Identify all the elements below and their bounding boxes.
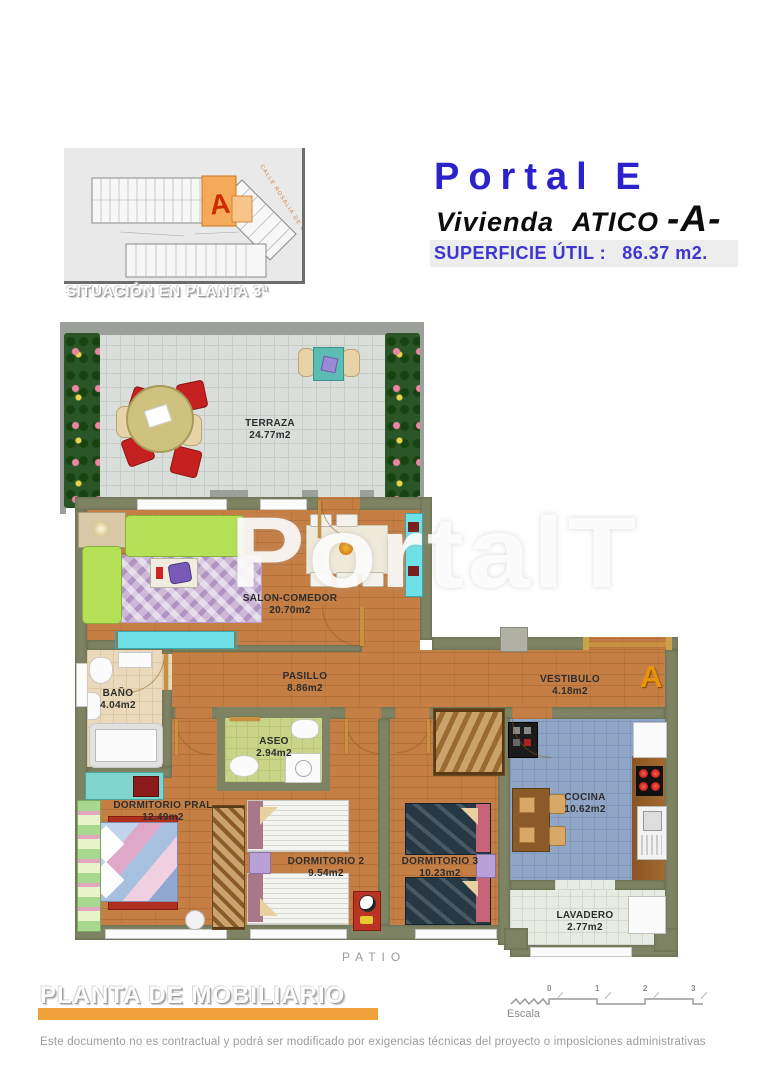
window bbox=[415, 929, 497, 939]
door-opening bbox=[175, 707, 212, 719]
superficie-label: SUPERFICIE ÚTIL : bbox=[434, 243, 606, 263]
door-leaf bbox=[175, 719, 178, 755]
scale-tick: 3 bbox=[691, 984, 695, 993]
table-item bbox=[167, 561, 192, 585]
door-jamb bbox=[666, 637, 672, 650]
burner bbox=[639, 769, 648, 778]
door-leaf bbox=[230, 717, 260, 721]
drainer bbox=[641, 835, 662, 855]
entrance-door-leaf bbox=[588, 642, 666, 647]
wall-pillar bbox=[500, 627, 528, 652]
situation-caption: SITUACIÓN EN PLANTA 3ª bbox=[66, 283, 268, 300]
door-leaf bbox=[427, 719, 430, 753]
bed-fold bbox=[461, 808, 478, 825]
flower-planter bbox=[385, 333, 420, 508]
superficie-value: 86.37 m2. bbox=[622, 243, 708, 263]
table-item bbox=[156, 567, 163, 579]
toy-box bbox=[353, 891, 381, 931]
wall bbox=[665, 650, 678, 957]
room-label-dorm3: DORMITORIO 3 10.23m2 bbox=[390, 856, 490, 880]
side-table bbox=[78, 512, 126, 548]
stool bbox=[185, 910, 205, 930]
wall bbox=[64, 322, 420, 335]
single-bed bbox=[247, 800, 349, 852]
double-bed bbox=[98, 822, 178, 902]
door-leaf bbox=[164, 654, 168, 690]
room-label-bano: BAÑO 4.04m2 bbox=[78, 688, 158, 712]
single-bed bbox=[405, 877, 491, 925]
situation-unit-letter: A bbox=[208, 188, 231, 221]
room-label-vestibulo: VESTIBULO 4.18m2 bbox=[520, 674, 620, 698]
sofa bbox=[125, 515, 245, 557]
door-opening bbox=[555, 880, 615, 890]
door-opening bbox=[512, 707, 552, 719]
window bbox=[530, 947, 632, 957]
shower-drain bbox=[295, 760, 312, 777]
door-opening bbox=[395, 707, 430, 719]
table-setting bbox=[519, 827, 535, 843]
lamp bbox=[93, 521, 109, 537]
fridge bbox=[633, 722, 667, 758]
bed-headboard bbox=[476, 804, 490, 852]
bed-headboard bbox=[476, 878, 490, 922]
burner bbox=[651, 769, 660, 778]
room-label-dorm-pral: DORMITORIO PRAL 12.49m2 bbox=[108, 800, 218, 824]
terrace-side-table bbox=[313, 347, 344, 381]
toy bbox=[360, 916, 373, 924]
bed-fold bbox=[260, 807, 278, 825]
room-label-lavadero: LAVADERO 2.77m2 bbox=[525, 910, 645, 934]
cooktop bbox=[636, 766, 663, 796]
flower-planter bbox=[64, 333, 100, 508]
door-leaf bbox=[345, 719, 348, 754]
burner bbox=[639, 782, 648, 791]
dwelling-type: ATICO bbox=[572, 207, 659, 237]
floorplan-page: A CALLE ROSALIA DE CASTRO SITUACIÓN EN P… bbox=[0, 0, 763, 1080]
coffee-table bbox=[150, 558, 198, 588]
table-item bbox=[321, 356, 339, 374]
window bbox=[105, 929, 227, 939]
kitchen-sink bbox=[637, 806, 667, 860]
scale-tick: 0 bbox=[547, 984, 551, 993]
portal-title: Portal E bbox=[434, 156, 650, 199]
soccer-ball bbox=[359, 895, 376, 912]
table-item bbox=[144, 404, 172, 429]
bed-fold bbox=[462, 881, 478, 897]
door-jamb bbox=[583, 637, 589, 650]
table-setting bbox=[519, 797, 535, 813]
situation-plan-drawing: A CALLE ROSALIA DE CASTRO bbox=[64, 148, 302, 281]
single-bed bbox=[405, 803, 491, 855]
room-label-dorm2: DORMITORIO 2 9.54m2 bbox=[266, 856, 386, 880]
bed-fold bbox=[260, 898, 278, 916]
terrace-chair bbox=[342, 349, 360, 377]
accent-bar bbox=[38, 1008, 378, 1020]
bathtub bbox=[89, 723, 163, 768]
single-bed bbox=[247, 873, 349, 925]
scale-tick: 1 bbox=[595, 984, 599, 993]
kitchen-chair bbox=[549, 826, 566, 846]
sofa bbox=[82, 546, 122, 624]
room-label-pasillo: PASILLO 8.86m2 bbox=[255, 671, 355, 695]
dwelling-title: ViviendaATICO-A- bbox=[436, 198, 721, 240]
scale-tick: 2 bbox=[643, 984, 647, 993]
footer-heading: PLANTA DE MOBILIARIO bbox=[40, 982, 345, 1010]
sink-basin bbox=[643, 811, 662, 831]
room-label-cocina: COCINA 10.62m2 bbox=[535, 792, 635, 816]
room-label-terraza: TERRAZA 24.77m2 bbox=[225, 418, 315, 442]
situation-plan-thumbnail: A CALLE ROSALIA DE CASTRO bbox=[64, 148, 305, 284]
room-label-aseo: ASEO 2.94m2 bbox=[224, 736, 324, 760]
door-opening bbox=[345, 707, 381, 719]
terrace-table bbox=[126, 385, 194, 453]
window bbox=[250, 929, 347, 939]
desk-chair bbox=[133, 776, 159, 797]
closet bbox=[433, 708, 505, 776]
tv-cabinet bbox=[115, 631, 237, 649]
floorplan: TERRAZA 24.77m2 bbox=[60, 318, 710, 974]
toilet bbox=[89, 657, 113, 684]
disclaimer: Este documento no es contractual y podrá… bbox=[40, 1036, 730, 1048]
dwelling-unit: -A- bbox=[667, 198, 721, 239]
door-leaf bbox=[360, 606, 364, 646]
burner bbox=[651, 782, 660, 791]
patio-label: PATIO bbox=[342, 950, 406, 964]
headboard-wardrobe bbox=[77, 800, 101, 932]
entrance-letter: A bbox=[640, 659, 662, 695]
dwelling-word: Vivienda bbox=[436, 207, 554, 237]
window bbox=[137, 499, 227, 510]
superficie-bar: SUPERFICIE ÚTIL :86.37 m2. bbox=[430, 240, 738, 267]
watermark: PortalT bbox=[230, 503, 639, 603]
scale-label: Escala bbox=[507, 1008, 540, 1020]
